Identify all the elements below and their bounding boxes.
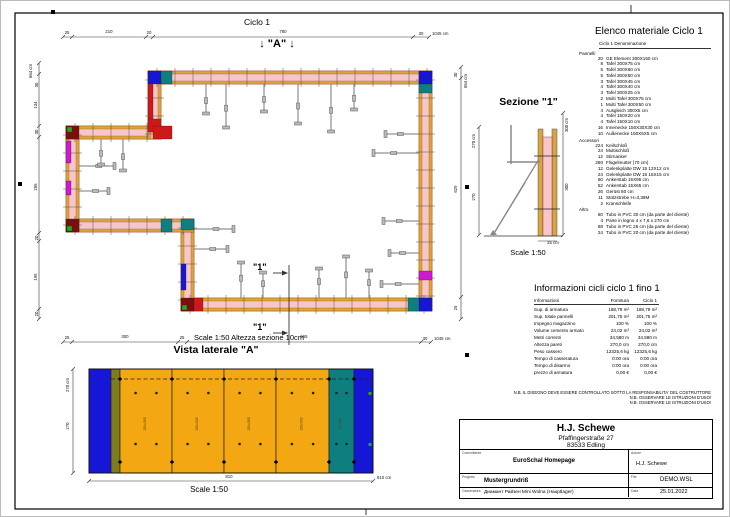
- cycle-info-value: 0:00 ora: [596, 362, 629, 369]
- svg-text:270: 270: [471, 193, 476, 201]
- material-list-groups: Pannelli20GE Element 300X150 cm8Tafel 30…: [579, 51, 719, 236]
- cycle-info-row: prezzo di armatura0,00 €0,00 €: [534, 369, 659, 376]
- svg-text:1045 cm: 1045 cm: [432, 31, 449, 36]
- material-item-name: Außenecke 150X5X5 cm: [606, 131, 657, 137]
- svg-text:30: 30: [453, 72, 458, 77]
- cut-label-top: "1": [253, 263, 267, 272]
- svg-text:150x300: 150x300: [300, 417, 304, 430]
- title-block: H.J. Schewe Pfaffingerstraße 27 83533 Ed…: [459, 419, 713, 499]
- material-item-qty: 2: [579, 201, 606, 207]
- cycle-info-value: 0:00 ora: [629, 362, 657, 369]
- svg-text:210: 210: [105, 29, 113, 34]
- svg-text:300 cm: 300 cm: [564, 118, 569, 133]
- material-item-qty: 10: [579, 131, 606, 137]
- material-item: 24Tubo in PVC 20 cm (da parte del client…: [579, 230, 719, 236]
- material-item-name: Tubo in PVC 20 cm (da parte del cliente): [606, 230, 689, 236]
- file-label: File: [631, 475, 636, 479]
- cycle-info-value: 0,00 €: [629, 369, 657, 376]
- cycle-info-value: 100 %: [629, 320, 657, 327]
- autore-value: H.J. Schewe: [636, 462, 667, 468]
- progetto-value: Mustergrundriß: [484, 478, 528, 484]
- cycle-info-label: Altezza pareti: [534, 341, 596, 348]
- material-list-subheader: Ciclo 1 Denominazione: [599, 41, 711, 49]
- svg-text:270 cm: 270 cm: [471, 134, 476, 149]
- cycle-info-value: 201,75 m²: [596, 313, 629, 320]
- material-group: Pannelli20GE Element 300X150 cm8Tafel 30…: [579, 51, 719, 137]
- file-value: DEMO.WSL: [660, 477, 693, 483]
- material-item: 10Außenecke 150X5X5 cm: [579, 131, 719, 137]
- material-group: Accessori224Keilschloß24Multischloß12Sti…: [579, 138, 719, 207]
- drawing-sheet: 2521020780301045 cm2530025665301045 cm66…: [0, 0, 730, 517]
- plan-props: [79, 84, 419, 298]
- committente-value: EuroSchal Homepage: [460, 458, 628, 464]
- cycle-info-value: 100 %: [596, 320, 629, 327]
- svg-text:780: 780: [279, 29, 287, 34]
- cycle-info-table: InformazioniFornituraCiclo 1 Sup. di arm…: [534, 297, 659, 376]
- plan-scale-note: Scale 1:50 Altezza sezione 10cm: [149, 334, 349, 342]
- svg-text:30: 30: [419, 31, 424, 36]
- svg-text:25: 25: [65, 30, 70, 35]
- autore-label: Autore: [631, 451, 641, 455]
- cycle-info-value: 12325,6 kg: [596, 348, 629, 355]
- svg-text:150x300: 150x300: [143, 417, 147, 430]
- cycle-info-rows: Sup. di armatura188,79 m²188,79 m²Sup. t…: [534, 306, 659, 376]
- svg-text:30: 30: [34, 129, 39, 134]
- section-marker-a: ↓ "A" ↓: [239, 39, 315, 50]
- cycle-info-value: 24,02 m³: [629, 327, 657, 334]
- material-item-qty: 24: [579, 230, 606, 236]
- svg-text:30: 30: [34, 82, 39, 87]
- data-label: Data: [631, 489, 638, 493]
- note-line: N.B. OSSERVARE LE ISTRUZIONI D'USO!: [451, 400, 711, 405]
- cycle-info-label: Sup. totale pannelli: [534, 313, 596, 320]
- cycle-info-label: Sup. di armatura: [534, 306, 596, 313]
- svg-text:300: 300: [564, 183, 569, 191]
- cycle-info-row: Sup. di armatura188,79 m²188,79 m²: [534, 306, 659, 313]
- cycle-info-label: Tempo di disarmo: [534, 362, 596, 369]
- company-address1: Pfaffingerstraße 27: [460, 435, 712, 442]
- material-list-title: Elenco materiale Ciclo 1: [595, 27, 703, 37]
- svg-text:664 cm: 664 cm: [28, 64, 33, 79]
- svg-text:20: 20: [34, 235, 39, 240]
- svg-text:654 cm: 654 cm: [463, 74, 468, 89]
- svg-text:270: 270: [65, 422, 70, 430]
- cycle-info-row: Altezza pareti270,0 cm270,0 cm: [534, 341, 659, 348]
- svg-text:810: 810: [225, 474, 233, 479]
- title-block-header: H.J. Schewe Pfaffingerstraße 27 83533 Ed…: [460, 420, 712, 450]
- cycle-info-row: Impegno magazzino100 %100 %: [534, 320, 659, 327]
- cycle-info-label: Metri correnti: [534, 334, 596, 341]
- cut-label-bottom: "1": [253, 323, 267, 332]
- svg-text:1045 cm: 1045 cm: [434, 336, 451, 341]
- svg-text:150x300: 150x300: [247, 417, 251, 430]
- svg-text:195: 195: [33, 273, 38, 281]
- cycle-info-value: 201,75 m²: [629, 313, 657, 320]
- cycle-info-label: Tempo di casseratura: [534, 355, 596, 362]
- svg-text:629: 629: [453, 185, 458, 193]
- cycle-info-value: 0:00 ora: [629, 355, 657, 362]
- cycle-info-row: Peso cassero12325,6 kg12325,6 kg: [534, 348, 659, 355]
- company-address2: 83533 Edling: [460, 442, 712, 449]
- title-block-rule2: [460, 487, 712, 488]
- material-item-name: Kranschleife: [606, 201, 631, 207]
- material-group: Altro60Tubo in PVC 30 cm (da parte del c…: [579, 207, 719, 235]
- cycle-info-value: 270,0 cm: [596, 341, 629, 348]
- cycle-info-value: 0,00 €: [596, 369, 629, 376]
- svg-text:300: 300: [121, 334, 129, 339]
- cycle-info-value: 34,580 m: [596, 334, 629, 341]
- svg-text:25: 25: [453, 305, 458, 310]
- cycle-info-value: 188,79 m²: [596, 306, 629, 313]
- svg-text:75x300: 75x300: [339, 418, 343, 430]
- cycle-info-value: 0:00 ora: [596, 355, 629, 362]
- svg-text:30: 30: [423, 336, 428, 341]
- side-view-scale: Scale 1:50: [129, 486, 289, 494]
- cycle-info-label: Peso cassero: [534, 348, 596, 355]
- title-block-rule1: [460, 473, 712, 474]
- svg-text:20: 20: [34, 311, 39, 316]
- svg-text:134: 134: [33, 101, 38, 109]
- committente-label: Committente: [462, 451, 481, 455]
- cycle-info-row: Metri correnti34,580 m34,580 m: [534, 334, 659, 341]
- cycle-info-col-header: Ciclo 1: [629, 297, 657, 304]
- progetto-label: Progetto: [462, 475, 475, 479]
- company-name: H.J. Schewe: [460, 423, 712, 434]
- cycle-info-label: prezzo di armatura: [534, 369, 596, 376]
- svg-text:20: 20: [147, 30, 152, 35]
- cycle-info-row: Tempo di casseratura0:00 ora0:00 ora: [534, 355, 659, 362]
- plan-title: Ciclo 1: [227, 18, 287, 27]
- svg-text:25: 25: [65, 335, 70, 340]
- section-title: Sezione "1": [481, 97, 576, 108]
- plan-drawing: [63, 68, 435, 314]
- casseratura-value: Диамант Райзен Mini Wolna (Hauptlager): [484, 491, 574, 496]
- svg-text:810 cm: 810 cm: [377, 475, 392, 480]
- cycle-info-row: Tempo di disarmo0:00 ora0:00 ora: [534, 362, 659, 369]
- svg-text:270 cm: 270 cm: [65, 378, 70, 393]
- svg-text:150x300: 150x300: [195, 417, 199, 430]
- cycle-info-value: 270,0 cm: [629, 341, 657, 348]
- cycle-info-col-header: Informazioni: [534, 297, 596, 304]
- casseratura-label: Casseratura: [462, 489, 480, 493]
- section-scale: Scale 1:50: [488, 249, 568, 257]
- cycle-info-value: 12325,6 kg: [629, 348, 657, 355]
- cycle-info-row: Volume cemento armato24,02 m³24,02 m³: [534, 327, 659, 334]
- disclaimer-notes: N.B. IL DISEGNO DEVE ESSERE CONTROLLATO …: [451, 390, 711, 406]
- cycle-info-value: 188,79 m²: [629, 306, 657, 313]
- svg-text:255: 255: [33, 183, 38, 191]
- cycle-info-header: InformazioniFornituraCiclo 1: [534, 297, 659, 305]
- cycle-info-title: Informazioni cicli ciclo 1 fino 1: [534, 284, 660, 294]
- cycle-info-value: 24,02 m³: [596, 327, 629, 334]
- data-value: 25.01.2022: [660, 490, 688, 496]
- side-view-title: Vista laterale "A": [121, 345, 311, 356]
- material-item: 2Kranschleife: [579, 201, 719, 207]
- material-list: Ciclo 1 Denominazione Pannelli20GE Eleme…: [579, 41, 719, 236]
- section-drawing: 270 cm270300 cm30025 cm: [471, 111, 569, 245]
- side-view-drawing: 150x300150x300150x300150x30075x300810810…: [65, 367, 392, 483]
- cycle-info-label: Volume cemento armato: [534, 327, 596, 334]
- cycle-info-row: Sup. totale pannelli201,75 m²201,75 m²: [534, 313, 659, 320]
- cycle-info-label: Impegno magazzino: [534, 320, 596, 327]
- cycle-info-col-header: Fornitura: [596, 297, 629, 304]
- cycle-info-value: 34,580 m: [629, 334, 657, 341]
